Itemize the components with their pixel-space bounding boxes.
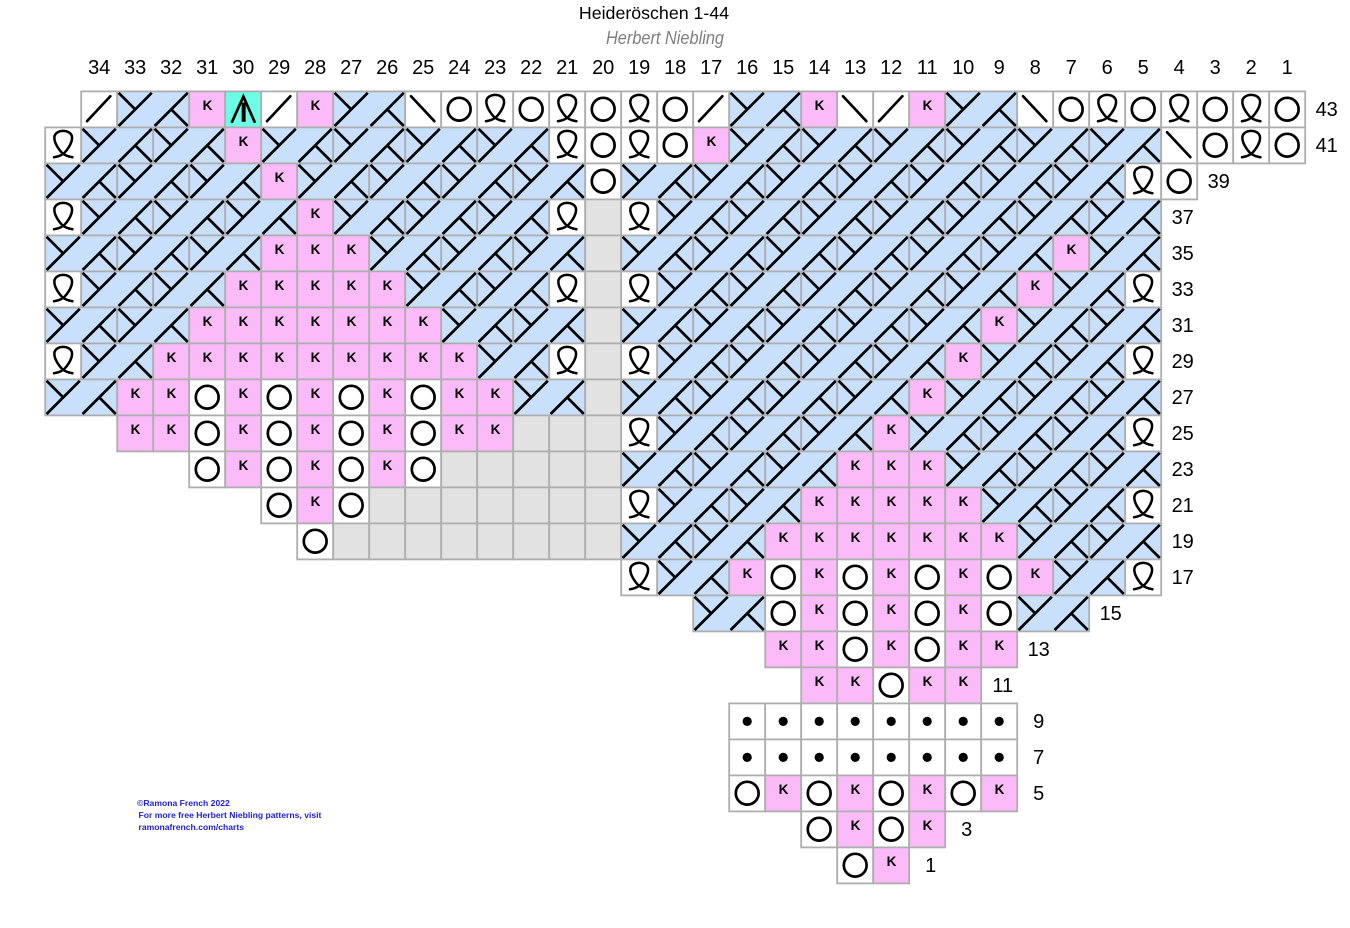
svg-text:35: 35 bbox=[1172, 243, 1194, 265]
svg-text:K: K bbox=[959, 566, 969, 581]
svg-text:23: 23 bbox=[1172, 459, 1194, 481]
svg-text:K: K bbox=[923, 98, 933, 113]
svg-text:K: K bbox=[779, 638, 789, 653]
svg-text:K: K bbox=[311, 278, 321, 293]
svg-text:K: K bbox=[923, 782, 933, 797]
svg-text:K: K bbox=[239, 422, 249, 437]
svg-text:15: 15 bbox=[772, 57, 794, 79]
svg-text:19: 19 bbox=[1172, 531, 1194, 553]
svg-text:28: 28 bbox=[304, 57, 326, 79]
svg-text:K: K bbox=[851, 494, 861, 509]
svg-text:K: K bbox=[239, 386, 249, 401]
svg-text:15: 15 bbox=[1100, 603, 1122, 625]
svg-text:K: K bbox=[383, 386, 393, 401]
svg-text:K: K bbox=[1067, 242, 1077, 257]
svg-text:K: K bbox=[383, 422, 393, 437]
svg-text:K: K bbox=[311, 206, 321, 221]
svg-text:30: 30 bbox=[232, 57, 254, 79]
svg-text:K: K bbox=[131, 386, 141, 401]
svg-text:K: K bbox=[455, 350, 465, 365]
svg-text:K: K bbox=[239, 350, 249, 365]
svg-text:Heideröschen 1-44: Heideröschen 1-44 bbox=[579, 3, 729, 23]
svg-text:K: K bbox=[131, 422, 141, 437]
svg-text:21: 21 bbox=[556, 57, 578, 79]
svg-text:K: K bbox=[311, 314, 321, 329]
svg-text:27: 27 bbox=[340, 57, 362, 79]
svg-text:K: K bbox=[275, 350, 285, 365]
svg-text:4: 4 bbox=[1174, 57, 1185, 79]
svg-text:K: K bbox=[959, 530, 969, 545]
svg-text:6: 6 bbox=[1102, 57, 1113, 79]
svg-text:K: K bbox=[347, 350, 357, 365]
svg-text:16: 16 bbox=[736, 57, 758, 79]
svg-text:K: K bbox=[959, 350, 969, 365]
svg-text:K: K bbox=[347, 278, 357, 293]
svg-text:K: K bbox=[815, 566, 825, 581]
svg-text:K: K bbox=[707, 134, 717, 149]
svg-text:K: K bbox=[995, 638, 1005, 653]
svg-text:ramonafrench.com/charts: ramonafrench.com/charts bbox=[139, 822, 245, 832]
svg-text:12: 12 bbox=[880, 57, 902, 79]
svg-text:K: K bbox=[851, 818, 861, 833]
svg-text:K: K bbox=[887, 638, 897, 653]
svg-text:K: K bbox=[815, 530, 825, 545]
svg-text:13: 13 bbox=[1028, 639, 1050, 661]
svg-text:34: 34 bbox=[88, 57, 110, 79]
svg-text:1: 1 bbox=[1282, 57, 1293, 79]
svg-text:K: K bbox=[383, 278, 393, 293]
svg-text:K: K bbox=[923, 386, 933, 401]
svg-text:9: 9 bbox=[1033, 711, 1044, 733]
svg-text:K: K bbox=[203, 350, 213, 365]
svg-text:43: 43 bbox=[1316, 99, 1338, 121]
svg-text:K: K bbox=[311, 458, 321, 473]
svg-text:K: K bbox=[743, 566, 753, 581]
svg-text:39: 39 bbox=[1208, 171, 1230, 193]
svg-text:13: 13 bbox=[844, 57, 866, 79]
svg-text:K: K bbox=[923, 494, 933, 509]
svg-text:K: K bbox=[275, 170, 285, 185]
svg-text:K: K bbox=[995, 314, 1005, 329]
svg-text:14: 14 bbox=[808, 57, 830, 79]
svg-text:K: K bbox=[851, 530, 861, 545]
svg-text:25: 25 bbox=[1172, 423, 1194, 445]
svg-text:K: K bbox=[923, 458, 933, 473]
svg-text:K: K bbox=[383, 458, 393, 473]
svg-text:K: K bbox=[887, 566, 897, 581]
svg-text:21: 21 bbox=[1172, 495, 1194, 517]
svg-text:K: K bbox=[959, 602, 969, 617]
svg-text:K: K bbox=[239, 314, 249, 329]
svg-text:Herbert Niebling: Herbert Niebling bbox=[606, 28, 724, 48]
svg-text:©Ramona French 2022: ©Ramona French 2022 bbox=[137, 798, 230, 808]
svg-text:K: K bbox=[815, 638, 825, 653]
svg-text:K: K bbox=[887, 494, 897, 509]
svg-text:K: K bbox=[203, 314, 213, 329]
svg-text:K: K bbox=[239, 278, 249, 293]
svg-text:K: K bbox=[491, 422, 501, 437]
svg-text:27: 27 bbox=[1172, 387, 1194, 409]
svg-text:K: K bbox=[851, 782, 861, 797]
svg-text:17: 17 bbox=[700, 57, 722, 79]
svg-text:K: K bbox=[275, 278, 285, 293]
svg-text:K: K bbox=[311, 494, 321, 509]
svg-text:K: K bbox=[887, 602, 897, 617]
svg-text:K: K bbox=[311, 242, 321, 257]
svg-text:29: 29 bbox=[268, 57, 290, 79]
svg-text:9: 9 bbox=[994, 57, 1005, 79]
svg-text:K: K bbox=[419, 314, 429, 329]
svg-text:K: K bbox=[1031, 278, 1041, 293]
svg-text:K: K bbox=[239, 134, 249, 149]
svg-text:26: 26 bbox=[376, 57, 398, 79]
svg-text:17: 17 bbox=[1172, 567, 1194, 589]
svg-text:33: 33 bbox=[124, 57, 146, 79]
svg-text:7: 7 bbox=[1066, 57, 1077, 79]
svg-text:K: K bbox=[779, 782, 789, 797]
svg-text:18: 18 bbox=[664, 57, 686, 79]
svg-text:37: 37 bbox=[1172, 207, 1194, 229]
svg-text:K: K bbox=[815, 98, 825, 113]
svg-text:K: K bbox=[311, 422, 321, 437]
svg-text:5: 5 bbox=[1033, 783, 1044, 805]
svg-text:1: 1 bbox=[925, 855, 936, 877]
svg-text:K: K bbox=[815, 674, 825, 689]
svg-text:23: 23 bbox=[484, 57, 506, 79]
svg-text:K: K bbox=[311, 350, 321, 365]
svg-text:20: 20 bbox=[592, 57, 614, 79]
svg-text:K: K bbox=[383, 314, 393, 329]
svg-text:K: K bbox=[167, 350, 177, 365]
svg-text:K: K bbox=[275, 314, 285, 329]
svg-text:K: K bbox=[311, 386, 321, 401]
svg-text:7: 7 bbox=[1033, 747, 1044, 769]
svg-text:K: K bbox=[167, 386, 177, 401]
svg-text:2: 2 bbox=[1246, 57, 1257, 79]
svg-text:19: 19 bbox=[628, 57, 650, 79]
svg-text:K: K bbox=[239, 458, 249, 473]
svg-text:11: 11 bbox=[992, 675, 1013, 697]
svg-text:41: 41 bbox=[1316, 135, 1338, 157]
svg-text:10: 10 bbox=[952, 57, 974, 79]
svg-text:K: K bbox=[923, 674, 933, 689]
svg-text:K: K bbox=[491, 386, 501, 401]
svg-text:K: K bbox=[779, 530, 789, 545]
svg-text:K: K bbox=[815, 494, 825, 509]
svg-text:K: K bbox=[455, 422, 465, 437]
svg-text:K: K bbox=[455, 386, 465, 401]
svg-text:K: K bbox=[815, 602, 825, 617]
svg-text:K: K bbox=[887, 458, 897, 473]
svg-text:3: 3 bbox=[1210, 57, 1221, 79]
svg-text:33: 33 bbox=[1172, 279, 1194, 301]
svg-text:5: 5 bbox=[1138, 57, 1149, 79]
svg-text:K: K bbox=[851, 458, 861, 473]
svg-text:K: K bbox=[419, 350, 429, 365]
svg-text:K: K bbox=[887, 854, 897, 869]
svg-text:11: 11 bbox=[917, 57, 938, 79]
svg-text:K: K bbox=[1031, 566, 1041, 581]
svg-text:25: 25 bbox=[412, 57, 434, 79]
svg-text:K: K bbox=[275, 242, 285, 257]
svg-text:K: K bbox=[203, 98, 213, 113]
svg-text:22: 22 bbox=[520, 57, 542, 79]
svg-text:3: 3 bbox=[961, 819, 972, 841]
svg-text:K: K bbox=[995, 782, 1005, 797]
svg-text:K: K bbox=[923, 530, 933, 545]
svg-text:K: K bbox=[923, 818, 933, 833]
svg-text:8: 8 bbox=[1030, 57, 1041, 79]
svg-text:K: K bbox=[347, 242, 357, 257]
svg-text:31: 31 bbox=[196, 57, 218, 79]
svg-text:K: K bbox=[851, 674, 861, 689]
svg-text:K: K bbox=[887, 422, 897, 437]
svg-text:K: K bbox=[347, 314, 357, 329]
svg-text:29: 29 bbox=[1172, 351, 1194, 373]
svg-text:24: 24 bbox=[448, 57, 470, 79]
svg-text:K: K bbox=[167, 422, 177, 437]
svg-text:K: K bbox=[959, 674, 969, 689]
svg-text:K: K bbox=[995, 530, 1005, 545]
svg-text:32: 32 bbox=[160, 57, 182, 79]
svg-text:K: K bbox=[959, 638, 969, 653]
svg-text:31: 31 bbox=[1172, 315, 1194, 337]
svg-text:K: K bbox=[959, 494, 969, 509]
svg-text:For more free Herbert Niebling: For more free Herbert Niebling patterns,… bbox=[139, 810, 322, 820]
svg-text:K: K bbox=[383, 350, 393, 365]
svg-text:K: K bbox=[887, 530, 897, 545]
svg-text:K: K bbox=[311, 98, 321, 113]
